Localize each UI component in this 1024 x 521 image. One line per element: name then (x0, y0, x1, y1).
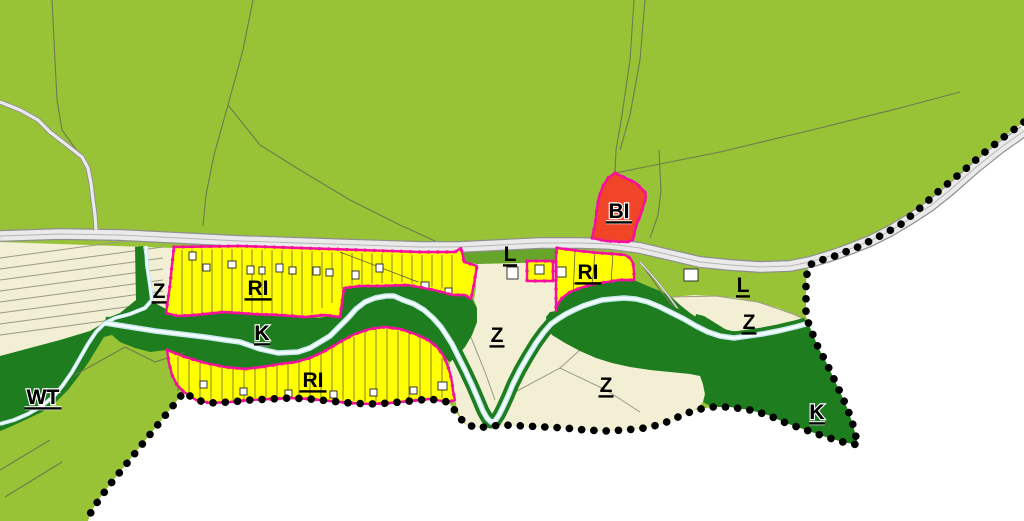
svg-text:Z: Z (743, 311, 756, 334)
svg-text:L: L (737, 274, 750, 297)
svg-text:RI: RI (248, 277, 269, 300)
svg-text:RI: RI (303, 369, 324, 392)
svg-text:BI: BI (609, 200, 630, 223)
svg-text:RI: RI (578, 261, 599, 284)
svg-text:Z: Z (491, 324, 504, 347)
svg-text:Z: Z (600, 374, 613, 397)
svg-text:Z: Z (153, 280, 166, 303)
svg-text:WT: WT (27, 386, 60, 409)
svg-text:L: L (504, 243, 517, 266)
svg-text:K: K (254, 322, 269, 345)
svg-text:K: K (809, 401, 824, 424)
